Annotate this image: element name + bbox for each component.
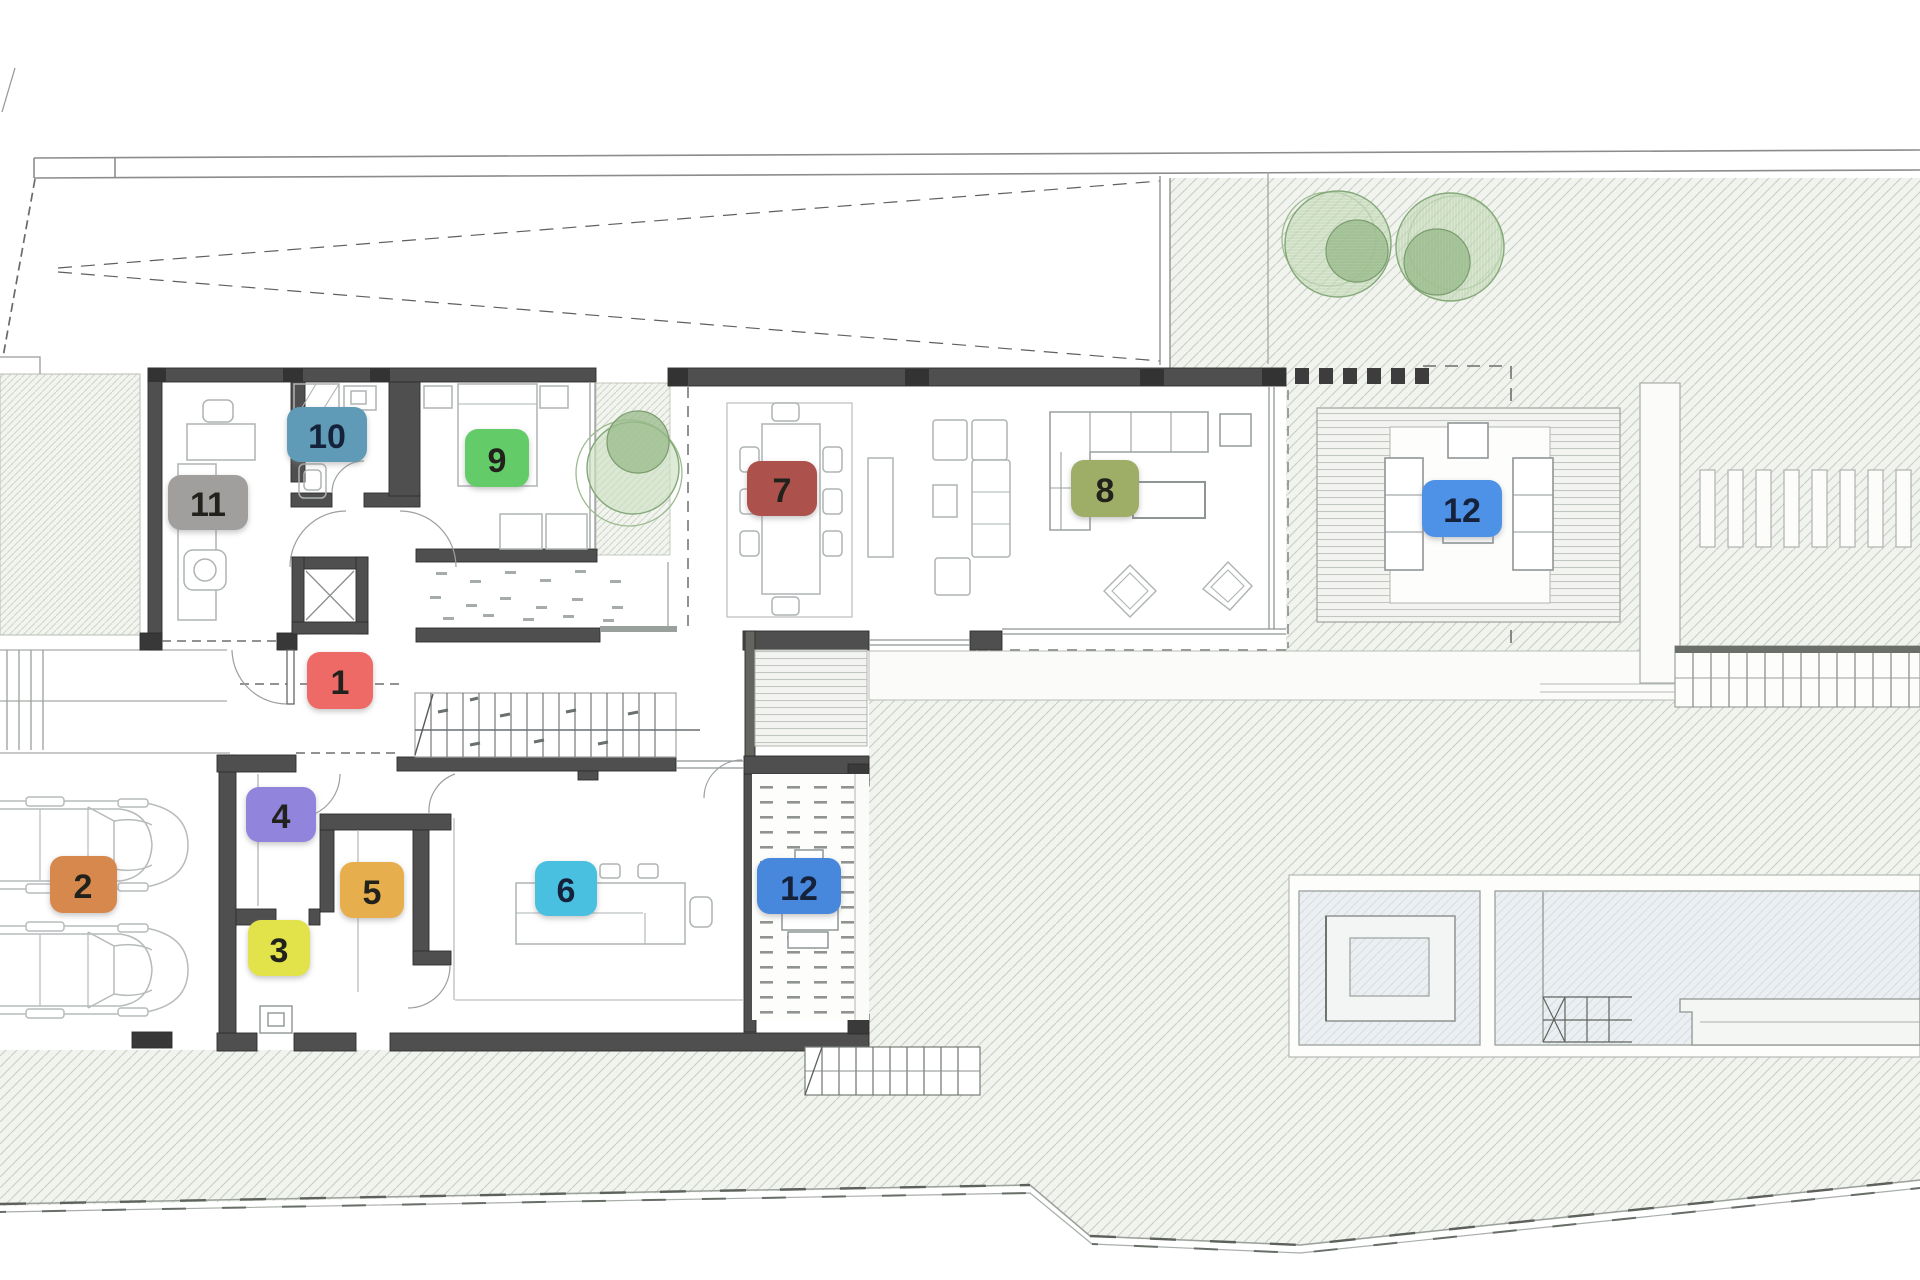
svg-text:10: 10 <box>308 418 346 456</box>
svg-text:12: 12 <box>1443 492 1481 530</box>
svg-text:2: 2 <box>74 868 93 906</box>
svg-text:5: 5 <box>363 874 382 912</box>
svg-text:8: 8 <box>1096 472 1115 510</box>
svg-text:9: 9 <box>488 442 507 480</box>
svg-text:7: 7 <box>773 472 792 510</box>
svg-text:4: 4 <box>272 798 291 836</box>
svg-text:3: 3 <box>270 932 289 970</box>
svg-text:6: 6 <box>557 872 576 910</box>
svg-text:12: 12 <box>780 870 818 908</box>
svg-text:11: 11 <box>190 486 226 524</box>
svg-text:1: 1 <box>331 664 350 702</box>
